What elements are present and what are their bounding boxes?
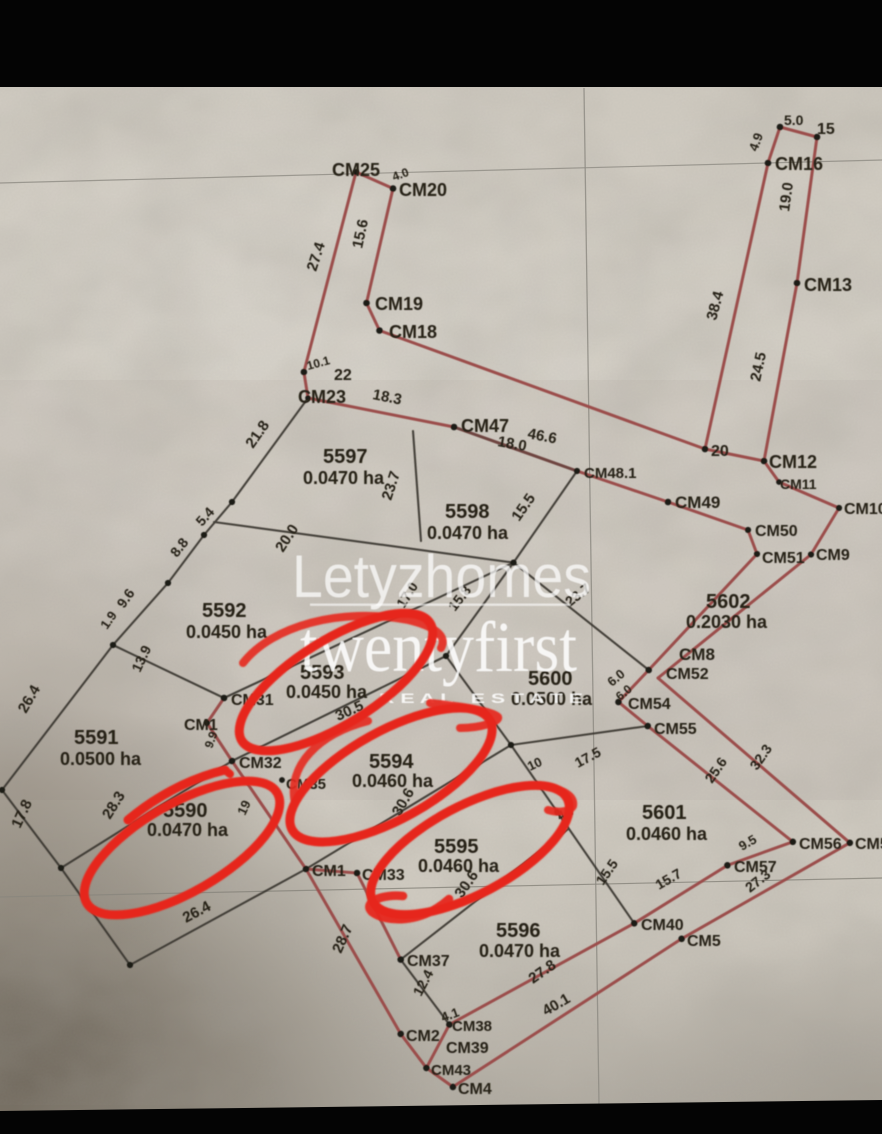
svg-text:0.0460 ha: 0.0460 ha: [352, 771, 434, 791]
svg-text:CM49: CM49: [675, 493, 720, 512]
svg-text:5.0: 5.0: [784, 112, 804, 128]
svg-text:5595: 5595: [434, 836, 479, 858]
svg-text:CM1: CM1: [184, 717, 218, 734]
svg-text:0.0450 ha: 0.0450 ha: [186, 622, 268, 642]
svg-text:5601: 5601: [642, 802, 687, 824]
svg-text:5597: 5597: [323, 446, 368, 468]
svg-text:0.0460 ha: 0.0460 ha: [626, 824, 708, 844]
svg-text:CM32: CM32: [239, 755, 282, 772]
svg-text:CM50: CM50: [755, 523, 798, 540]
svg-text:CM25: CM25: [332, 160, 380, 180]
svg-text:CM38: CM38: [452, 1018, 492, 1035]
svg-text:5592: 5592: [202, 600, 247, 622]
svg-text:CM20: CM20: [399, 180, 447, 200]
svg-text:CM5: CM5: [687, 933, 721, 950]
svg-text:CM23: CM23: [298, 387, 346, 407]
svg-text:CM16: CM16: [775, 154, 823, 174]
svg-text:CM2: CM2: [406, 1028, 440, 1045]
svg-text:15: 15: [817, 121, 835, 138]
svg-text:CM12: CM12: [769, 452, 817, 472]
svg-text:CM9: CM9: [816, 547, 850, 564]
svg-text:CM19: CM19: [375, 294, 423, 314]
svg-text:CM13: CM13: [804, 275, 852, 295]
svg-text:5598: 5598: [445, 501, 490, 523]
svg-text:CM52: CM52: [666, 666, 709, 683]
svg-text:CM39: CM39: [446, 1040, 489, 1057]
svg-text:0.0460 ha: 0.0460 ha: [418, 856, 500, 876]
svg-text:CM18: CM18: [389, 322, 437, 342]
svg-text:CM4: CM4: [458, 1081, 492, 1098]
svg-text:CM1: CM1: [312, 863, 346, 880]
svg-text:CM48.1: CM48.1: [584, 465, 637, 482]
svg-text:R E A L E S T A T E: R E A L E S T A T E: [379, 691, 583, 706]
svg-text:0.2030 ha: 0.2030 ha: [686, 612, 768, 632]
svg-text:CM5: CM5: [855, 836, 882, 853]
svg-text:22: 22: [334, 367, 352, 384]
svg-text:5594: 5594: [369, 751, 414, 773]
svg-text:5602: 5602: [706, 591, 751, 613]
svg-text:CM51: CM51: [762, 550, 805, 567]
svg-text:CM43: CM43: [431, 1062, 471, 1079]
svg-text:CM54: CM54: [628, 696, 671, 713]
svg-text:5596: 5596: [496, 920, 541, 942]
svg-text:Letyzhomes: Letyzhomes: [292, 543, 591, 610]
svg-text:CM37: CM37: [407, 953, 450, 970]
svg-text:CM57: CM57: [734, 859, 777, 876]
svg-text:CM11: CM11: [780, 476, 817, 492]
svg-text:0.0500 ha: 0.0500 ha: [60, 749, 142, 769]
svg-text:0.0470 ha: 0.0470 ha: [147, 820, 229, 840]
svg-text:CM55: CM55: [654, 721, 697, 738]
svg-text:0.0470 ha: 0.0470 ha: [303, 468, 385, 488]
svg-text:0.0470 ha: 0.0470 ha: [427, 523, 509, 543]
svg-text:20: 20: [711, 443, 729, 460]
svg-text:5591: 5591: [74, 727, 119, 749]
svg-text:CM8: CM8: [679, 645, 715, 664]
svg-text:CM56: CM56: [799, 836, 842, 853]
svg-text:CM10: CM10: [844, 501, 882, 518]
svg-text:CM40: CM40: [641, 917, 684, 934]
